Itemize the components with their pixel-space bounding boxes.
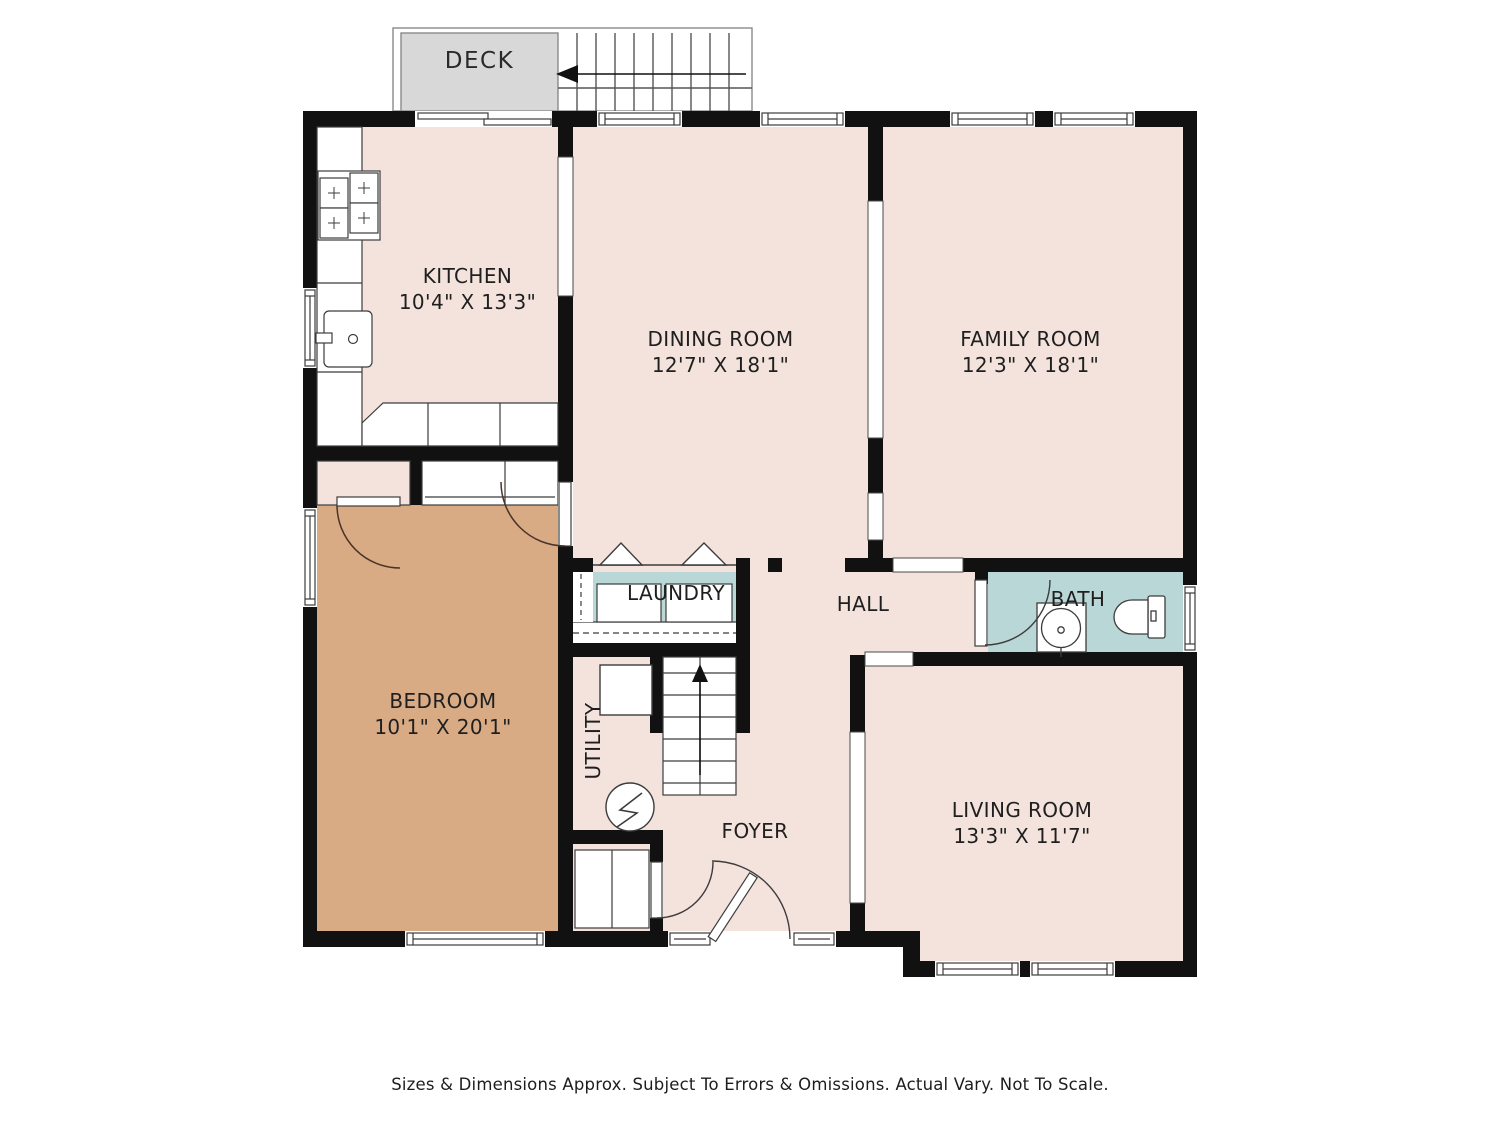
foyer-label: FOYER — [685, 818, 825, 844]
furnace-icon — [606, 783, 654, 831]
water-heater-icon — [600, 665, 652, 715]
utility-label: UTILITY — [580, 661, 602, 821]
interior-stairs-icon — [663, 657, 736, 795]
bedroom-label: BEDROOM 10'1" X 20'1" — [328, 688, 558, 740]
floor-plan: DECK KITCHEN 10'4" X 13'3" DINING ROOM 1… — [0, 0, 1500, 1125]
disclaimer-text: Sizes & Dimensions Approx. Subject To Er… — [0, 1075, 1500, 1094]
family-room-label: FAMILY ROOM 12'3" X 18'1" — [898, 326, 1163, 378]
sliding-door-icon — [415, 111, 552, 127]
living-room-label: LIVING ROOM 13'3" X 11'7" — [888, 797, 1156, 849]
laundry-label: LAUNDRY — [601, 580, 751, 606]
floor-plan-drawing — [0, 0, 1500, 1125]
kitchen-label: KITCHEN 10'4" X 13'3" — [350, 263, 585, 315]
stove-icon — [318, 171, 380, 240]
deck-label: DECK — [401, 47, 558, 77]
bath-label: BATH — [1010, 586, 1146, 612]
bedroom-closet-right — [422, 461, 558, 505]
kitchen-sink-icon — [316, 311, 372, 367]
dining-room-label: DINING ROOM 12'7" X 18'1" — [588, 326, 853, 378]
kitchen-counter-bottom — [362, 403, 558, 446]
hall-label: HALL — [795, 591, 931, 617]
